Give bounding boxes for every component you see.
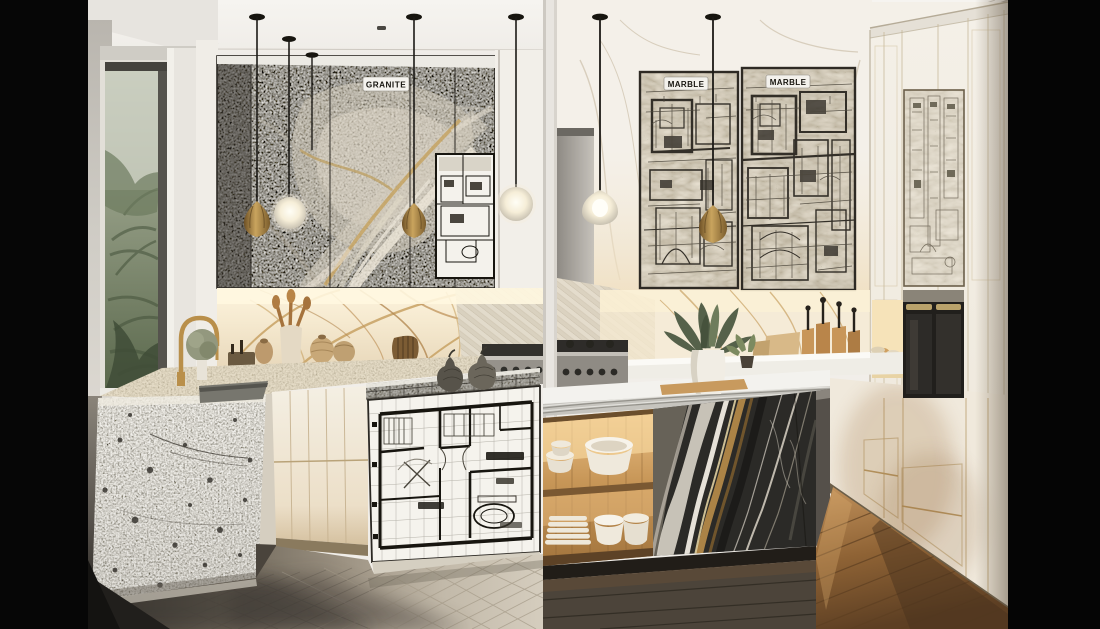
svg-text:GRANITE: GRANITE [366,81,406,90]
svg-text:MARBLE: MARBLE [770,78,807,87]
svg-text:MARBLE: MARBLE [668,80,705,89]
